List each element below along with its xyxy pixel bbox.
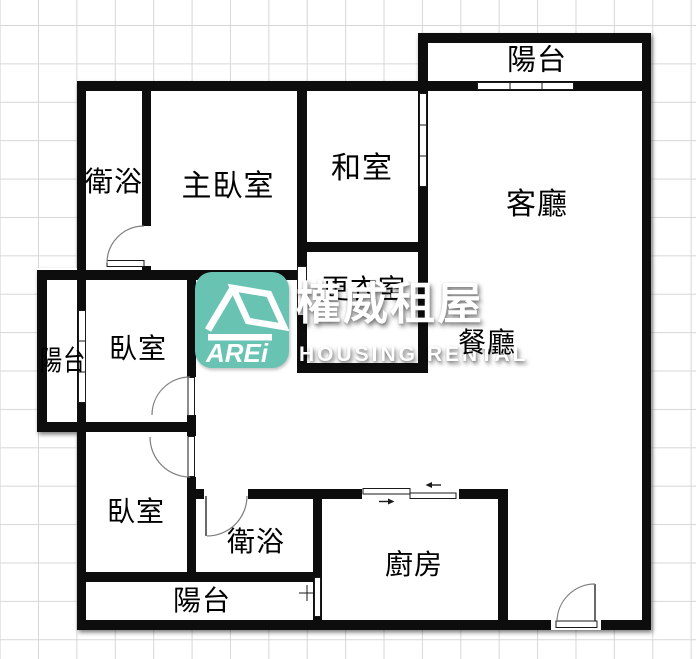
floorplan-page: 權威租屋 HOUSING RENTAL AREi 陽台衛浴主臥室和室客廳更衣室餐…: [0, 0, 696, 659]
arei-logo: AREi: [195, 272, 289, 368]
room-label-master-bedroom: 主臥室: [182, 172, 275, 202]
watermark-brand-name: 權威租屋: [296, 281, 484, 326]
roof-house-icon: [208, 288, 284, 330]
arei-logo-graphic: AREi: [195, 272, 289, 368]
room-label-bedroom-middle: 臥室: [109, 336, 167, 364]
floorplan-drawing: [0, 0, 696, 659]
room-label-bathroom-lower: 衛浴: [227, 529, 285, 557]
room-label-kitchen: 廚房: [385, 552, 443, 580]
room-label-balcony-bottom: 陽台: [173, 588, 231, 616]
walls-layer: [37, 33, 651, 630]
room-label-tatami-room: 和室: [331, 154, 393, 184]
room-label-balcony-top: 陽台: [507, 47, 567, 76]
room-label-living-room: 客廳: [506, 190, 568, 220]
logo-abbrev-text: AREi: [205, 338, 269, 368]
room-label-bathroom-upper: 衛浴: [85, 169, 143, 197]
room-label-balcony-left: 陽台: [40, 348, 86, 376]
room-label-dining-room: 餐廳: [458, 330, 516, 358]
sliding-window-icon-tatami: [420, 94, 427, 187]
window-icon-balcony-top: [478, 83, 574, 90]
room-label-bedroom-lower: 臥室: [107, 499, 165, 527]
